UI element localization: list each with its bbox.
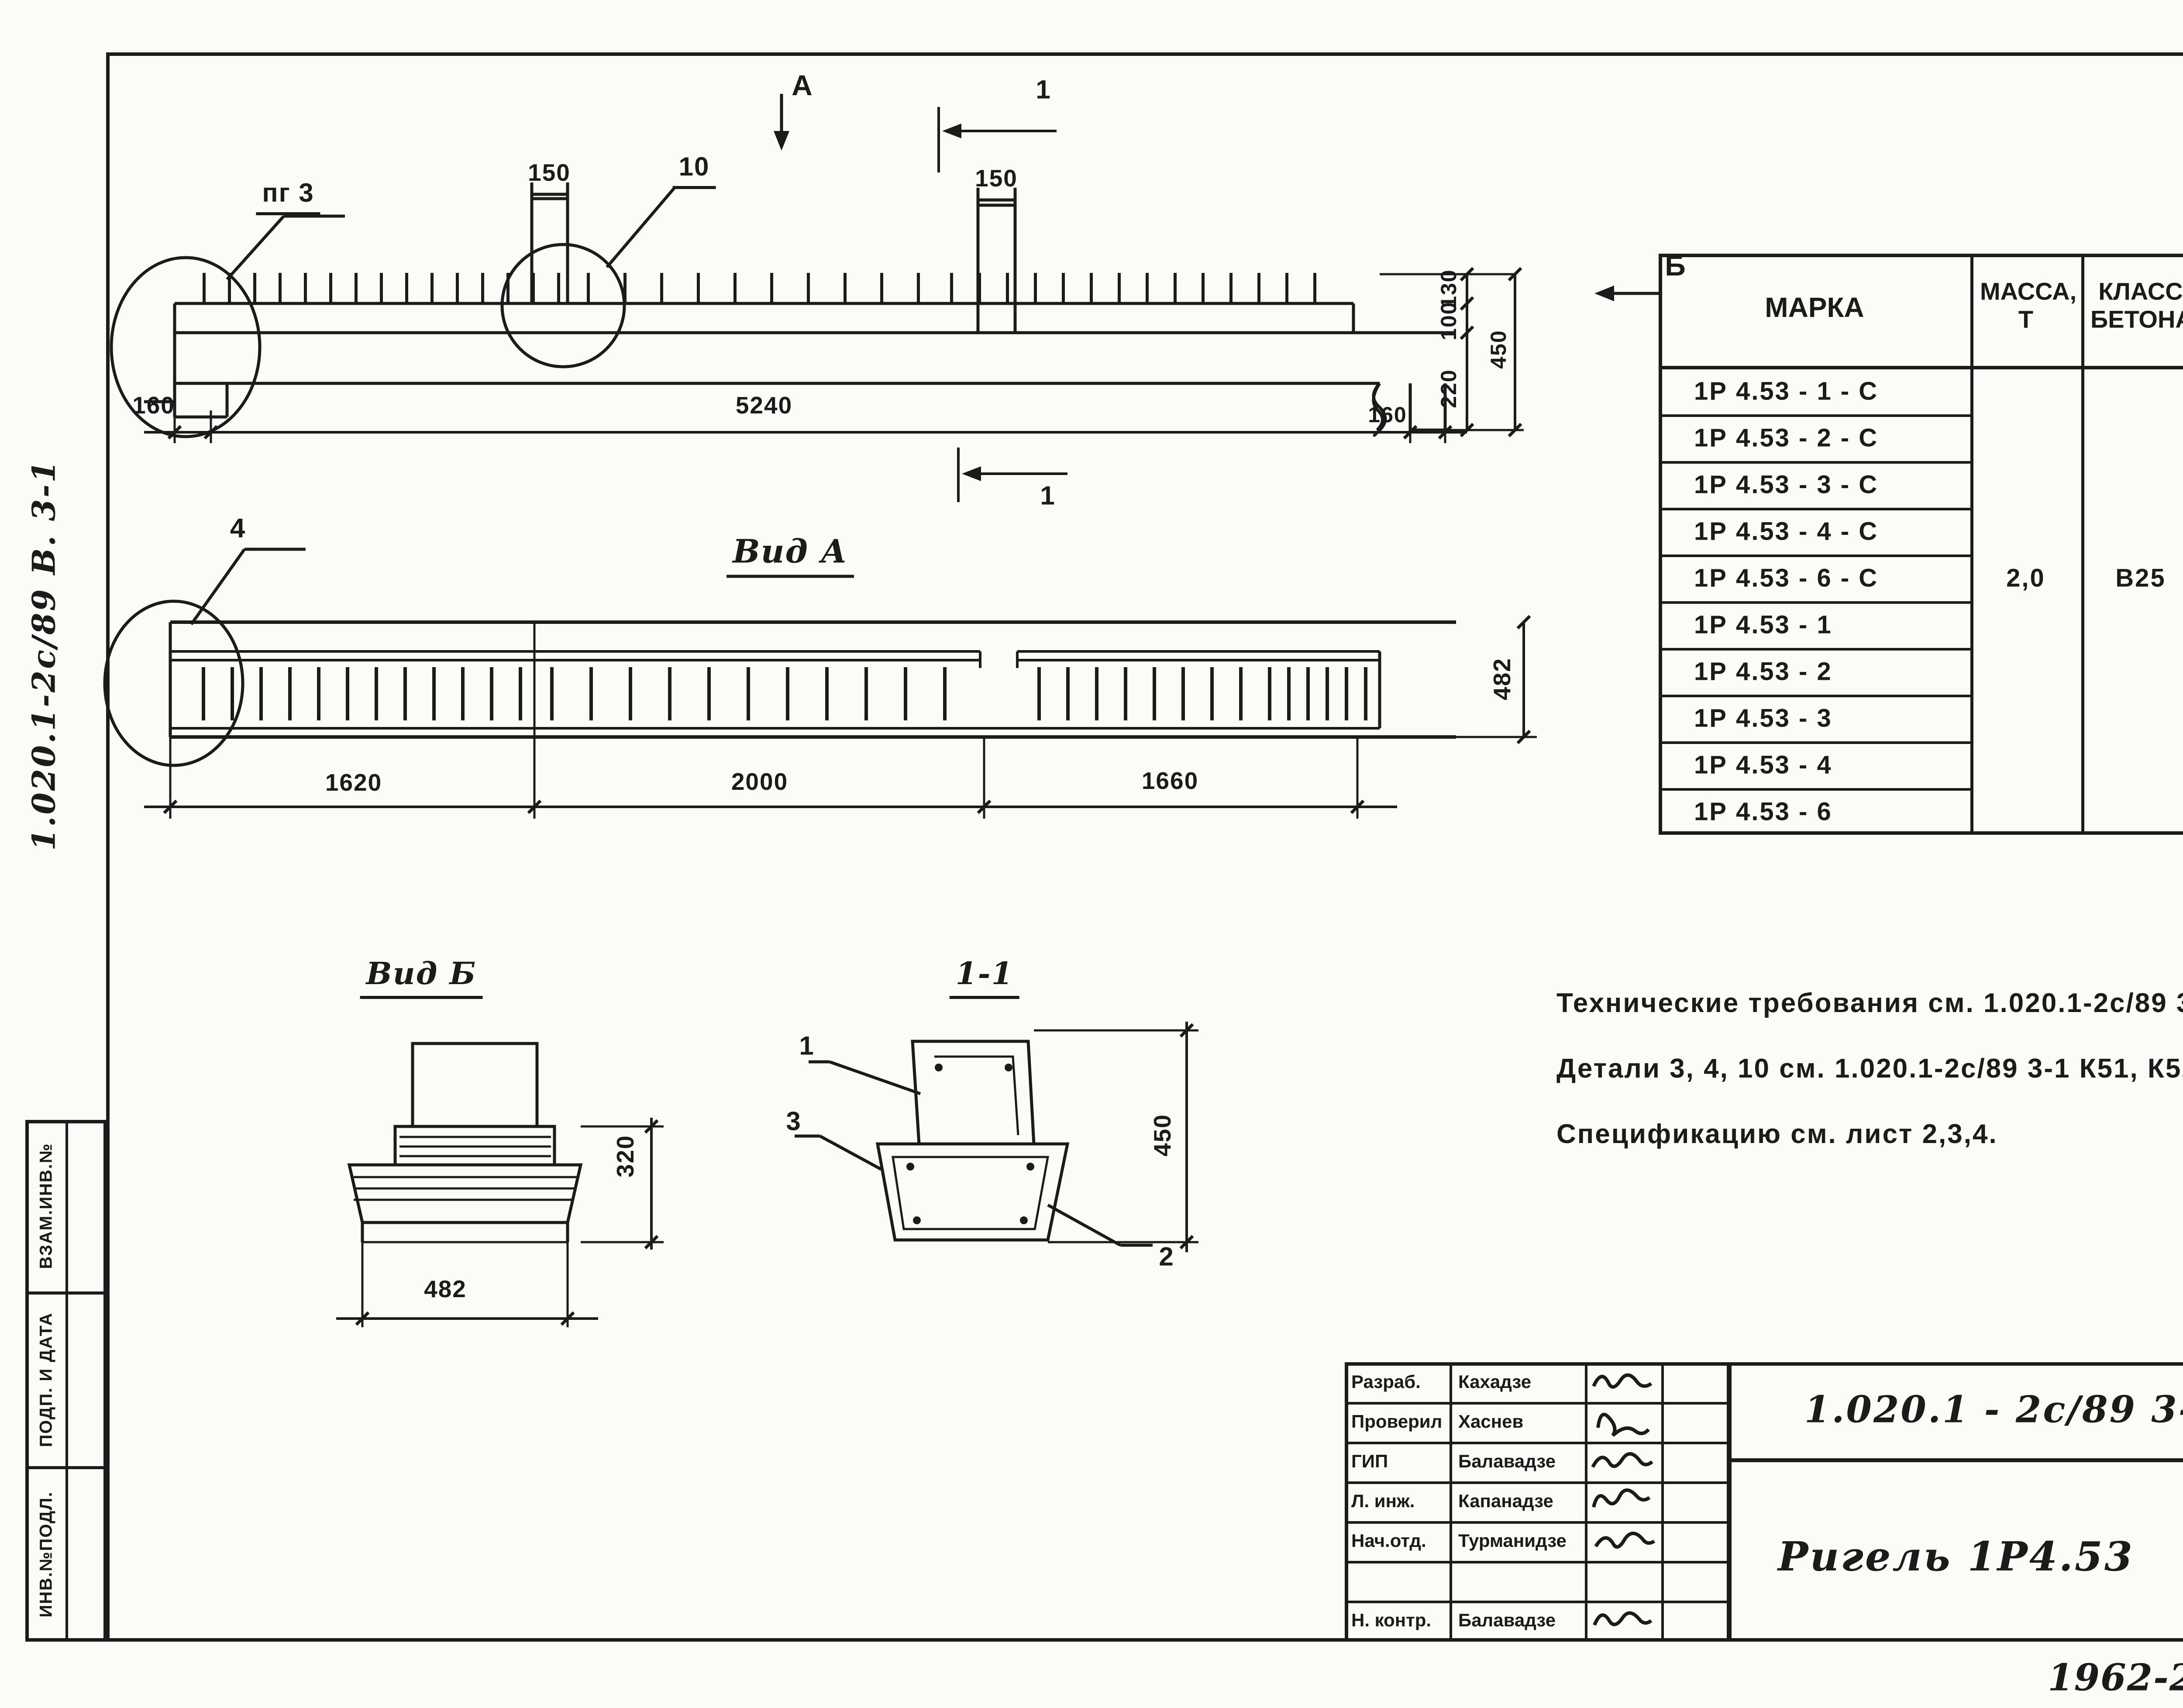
elevation-dim-stub-right: 150: [975, 164, 1018, 192]
stamp-box-label: ПОДП. И ДАТА: [37, 1312, 56, 1447]
section-callout-1: 1: [799, 1031, 814, 1061]
elevation-dim-160-stub: 160: [1368, 402, 1407, 427]
section-mark-1-bottom-label: 1: [1040, 481, 1055, 511]
role-label: Н. контр.: [1351, 1610, 1431, 1631]
table-row-mark: 1Р 4.53 - 4: [1694, 751, 1832, 780]
elevation-dim-160-left: 160: [132, 391, 175, 419]
table-row-mark: 1Р 4.53 - 3 - С: [1694, 470, 1878, 499]
note-line-2: Детали 3, 4, 10 см. 1.020.1-2с/89 3-1 К5…: [1556, 1053, 2183, 1084]
elevation-dim-220: 220: [1436, 369, 1461, 408]
stamp-box-label: ВЗАМ.ИНВ.№: [37, 1143, 56, 1269]
view-b-title: Вид Б: [360, 955, 483, 999]
margin-doc-ref: 1.020.1-2с/89 В. 3-1: [25, 459, 62, 851]
table-row-mark: 1Р 4.53 - 1: [1694, 610, 1832, 640]
shared-mass-value: 2,0: [2006, 564, 2045, 593]
view-a-dim-1620: 1620: [325, 768, 382, 796]
handwritten-job-number: 1962-29: [2048, 1656, 2183, 1699]
view-a-dim-1660: 1660: [1142, 767, 1198, 795]
note-line-1: Технические требования см. 1.020.1-2с/89…: [1556, 988, 2183, 1019]
title-block-doc-number: 1.020.1 - 2с/89 3-1 К7: [1804, 1388, 2183, 1431]
role-label: ГИП: [1351, 1451, 1388, 1472]
elevation-dim-450: 450: [1486, 330, 1511, 368]
table-row-mark: 1Р 4.53 - 6: [1694, 797, 1832, 826]
role-name: Балавадзе: [1458, 1451, 1556, 1472]
col-header-mass: МАССА, Т: [1980, 278, 2072, 334]
table-row-mark: 1Р 4.53 - 2 - С: [1694, 424, 1878, 453]
table-row-mark: 1Р 4.53 - 6 - С: [1694, 564, 1878, 593]
scanned-drawing-sheet: { "page": { "sheet_number": "20", "forma…: [0, 0, 2183, 1704]
role-name: Турманидзе: [1458, 1530, 1567, 1551]
view-a-detail-ref: 4: [230, 513, 246, 544]
elevation-dim-100: 100: [1436, 301, 1461, 340]
view-a-title: Вид А: [727, 533, 854, 578]
section-1-1-title: 1-1: [950, 955, 1019, 999]
table-row-mark: 1Р 4.53 - 4 - С: [1694, 517, 1878, 546]
role-label: Разраб.: [1351, 1371, 1421, 1392]
note-line-3: Спецификацию см. лист 2,3,4.: [1556, 1119, 1998, 1150]
table-row-mark: 1Р 4.53 - 3: [1694, 704, 1832, 733]
table-row-mark: 1Р 4.53 - 2: [1694, 657, 1832, 686]
role-label: Л. инж.: [1351, 1491, 1415, 1512]
shared-concrete-class-value: В25: [2115, 564, 2166, 593]
col-header-mark: МАРКА: [1765, 292, 1864, 324]
role-name: Хаснев: [1458, 1411, 1523, 1432]
section-mark-1-top-label: 1: [1036, 75, 1051, 105]
section-callout-2: 2: [1159, 1242, 1174, 1272]
col-header-concrete-class: КЛАСС БЕТОНА: [2090, 278, 2183, 334]
elevation-detail-no: 10: [673, 152, 716, 189]
role-name: Капанадзе: [1458, 1491, 1553, 1512]
role-name: Балавадзе: [1458, 1610, 1556, 1631]
title-block-product-title: Ригель 1Р4.53: [1778, 1533, 2134, 1580]
section-mark-a-label: А: [792, 69, 813, 102]
elevation-detail-ref: пг 3: [256, 178, 320, 215]
elevation-dim-stub-left: 150: [528, 158, 571, 186]
view-a-dim-482: 482: [1488, 658, 1516, 700]
view-b-dim-320: 320: [611, 1135, 639, 1178]
section-callout-3: 3: [786, 1106, 801, 1136]
role-label: Нач.отд.: [1351, 1530, 1426, 1551]
table-row-mark: 1Р 4.53 - 1 - С: [1694, 377, 1878, 406]
elevation-dim-5240: 5240: [736, 391, 792, 419]
stamp-box-label: ИНВ.№ПОДЛ.: [37, 1491, 56, 1617]
section-dim-450: 450: [1148, 1114, 1176, 1157]
role-label: Проверил: [1351, 1411, 1442, 1432]
role-name: Кахадзе: [1458, 1371, 1531, 1392]
view-b-dim-482: 482: [424, 1275, 467, 1303]
view-a-dim-2000: 2000: [731, 768, 788, 795]
